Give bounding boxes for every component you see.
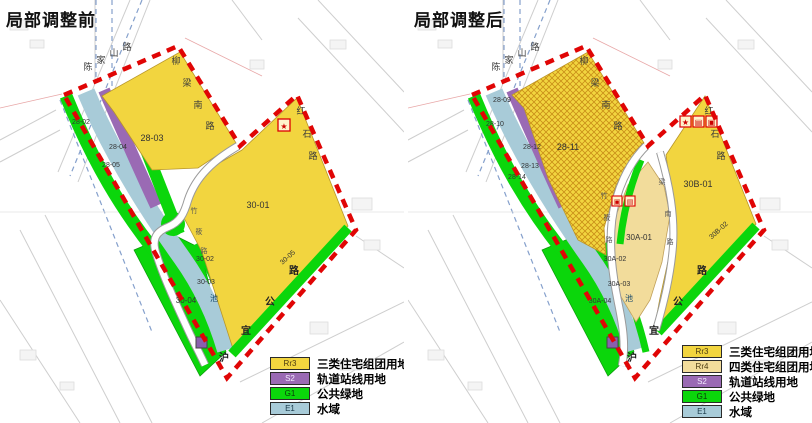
legend-label: 公共绿地 xyxy=(729,389,775,405)
legend-swatch-rr4: Rr4 xyxy=(682,360,722,373)
legend-swatch-rr3: Rr3 xyxy=(682,345,722,358)
road-label-char: 柳 xyxy=(579,55,588,66)
parcel-label: 30B-01 xyxy=(683,179,712,189)
legend-label: 三类住宅组团用地 xyxy=(729,344,812,360)
road-label-char: 沪 xyxy=(219,351,229,364)
road-label-char: 竹 xyxy=(191,206,198,215)
parcel-label: 30A-04 xyxy=(589,298,612,305)
road-label-char: 南 xyxy=(193,99,202,110)
legend-label: 轨道站线用地 xyxy=(729,374,798,390)
parcel-label: 30A-01 xyxy=(626,233,652,242)
legend-label: 水域 xyxy=(729,404,752,420)
water-label: 池 xyxy=(210,293,218,303)
road-label-char: 路 xyxy=(613,120,622,131)
road-label-char: 路 xyxy=(205,120,214,131)
road-label-char: 宜 xyxy=(649,324,659,337)
parcel-label: 28-13 xyxy=(521,163,539,170)
road-label-char: 南 xyxy=(665,209,672,218)
legend-row: E1 水域 xyxy=(682,404,812,419)
legend-label: 三类住宅组团用地 xyxy=(317,356,404,372)
road-label-char: 陈 xyxy=(83,61,92,72)
legend-row: G1 公共绿地 xyxy=(682,389,812,404)
legend-label: 轨道站线用地 xyxy=(317,371,386,387)
legend-label: 公共绿地 xyxy=(317,386,363,402)
road-label-char: 公 xyxy=(265,296,275,308)
parcel-label: 28-02 xyxy=(72,119,90,126)
road-label-char: 路 xyxy=(530,41,539,52)
legend-after: Rr3 三类住宅组团用地 Rr4 四类住宅组团用地 S2 轨道站线用地 G1 公… xyxy=(682,344,812,419)
title-before: 局部调整前 xyxy=(6,6,96,31)
legend-swatch-e1: E1 xyxy=(270,402,310,415)
road-label-char: 路 xyxy=(716,150,725,161)
star-icon: ★ xyxy=(682,118,689,127)
legend-swatch-rr3: Rr3 xyxy=(270,357,310,370)
legend-row: Rr3 三类住宅组团用地 xyxy=(682,344,812,359)
legend-row: E1 水域 xyxy=(270,401,404,416)
road-label-char: 竹 xyxy=(601,191,608,200)
road-label-char: 山 xyxy=(109,48,118,58)
panel-before: 局部调整前 xyxy=(0,0,404,423)
road-label-char: 沪 xyxy=(627,351,637,364)
road-label-char: 路 xyxy=(201,246,208,255)
facility-icon: ▤ xyxy=(627,199,634,206)
parcel-label: 30-02 xyxy=(196,256,214,263)
legend-row: Rr3 三类住宅组团用地 xyxy=(270,356,404,371)
road-label-char: 筱 xyxy=(196,227,203,236)
road-label-char: 梁 xyxy=(659,177,666,186)
star-icon: ★ xyxy=(280,122,287,131)
road-label-char: 宜 xyxy=(241,324,251,337)
legend-row: G1 公共绿地 xyxy=(270,386,404,401)
legend-label: 四类住宅组团用地 xyxy=(729,359,812,375)
road-label-char: 路 xyxy=(308,150,317,161)
road-label-char: 柳 xyxy=(171,55,180,66)
parcel-label: 28-12 xyxy=(523,144,541,151)
legend-before: Rr3 三类住宅组团用地 S2 轨道站线用地 G1 公共绿地 E1 水域 xyxy=(270,356,404,416)
road-label-char: 筱 xyxy=(604,213,611,222)
legend-swatch-s2: S2 xyxy=(270,372,310,385)
facility-icon: ▣ xyxy=(614,199,621,206)
parcel-label: 30A-02 xyxy=(604,256,627,263)
road-label-char: 梁 xyxy=(590,77,599,88)
road-label-char: 梁 xyxy=(182,77,191,88)
water-label: 池 xyxy=(625,293,633,303)
road-label-char: 家 xyxy=(96,54,105,65)
road-label-char: 家 xyxy=(504,54,513,65)
road-label-char: 路 xyxy=(606,235,613,244)
parcel-label: 28-11 xyxy=(557,142,579,152)
parcel-label: 28-09 xyxy=(493,97,511,104)
legend-swatch-g1: G1 xyxy=(682,390,722,403)
road-label-char: 路 xyxy=(667,237,674,246)
legend-swatch-s2: S2 xyxy=(682,375,722,388)
parcel-label: 30A-03 xyxy=(608,281,631,288)
road-label-char: 陈 xyxy=(491,61,500,72)
road-label-char: 公 xyxy=(673,296,683,308)
planning-map-comparison: 局部调整前 xyxy=(0,0,812,423)
panel-after: 局部调整后 xyxy=(408,0,812,423)
facility-icon: ▤ xyxy=(695,118,703,127)
road-label-char: 路 xyxy=(289,264,300,277)
parcel-label: 30-01 xyxy=(246,200,269,210)
legend-row: Rr4 四类住宅组团用地 xyxy=(682,359,812,374)
parcel-label: 28-03 xyxy=(140,133,163,143)
legend-swatch-e1: E1 xyxy=(682,405,722,418)
legend-swatch-g1: G1 xyxy=(270,387,310,400)
legend-row: S2 轨道站线用地 xyxy=(682,374,812,389)
road-label-char: 山 xyxy=(517,48,526,58)
legend-row: S2 轨道站线用地 xyxy=(270,371,404,386)
title-after: 局部调整后 xyxy=(414,6,504,31)
parcel-label: 28-04 xyxy=(109,144,127,151)
legend-label: 水域 xyxy=(317,401,340,417)
road-label-char: 南 xyxy=(601,99,610,110)
parcel-label: 30-03 xyxy=(197,279,215,286)
road-label-char: 路 xyxy=(697,264,708,277)
road-label-char: 路 xyxy=(122,41,131,52)
